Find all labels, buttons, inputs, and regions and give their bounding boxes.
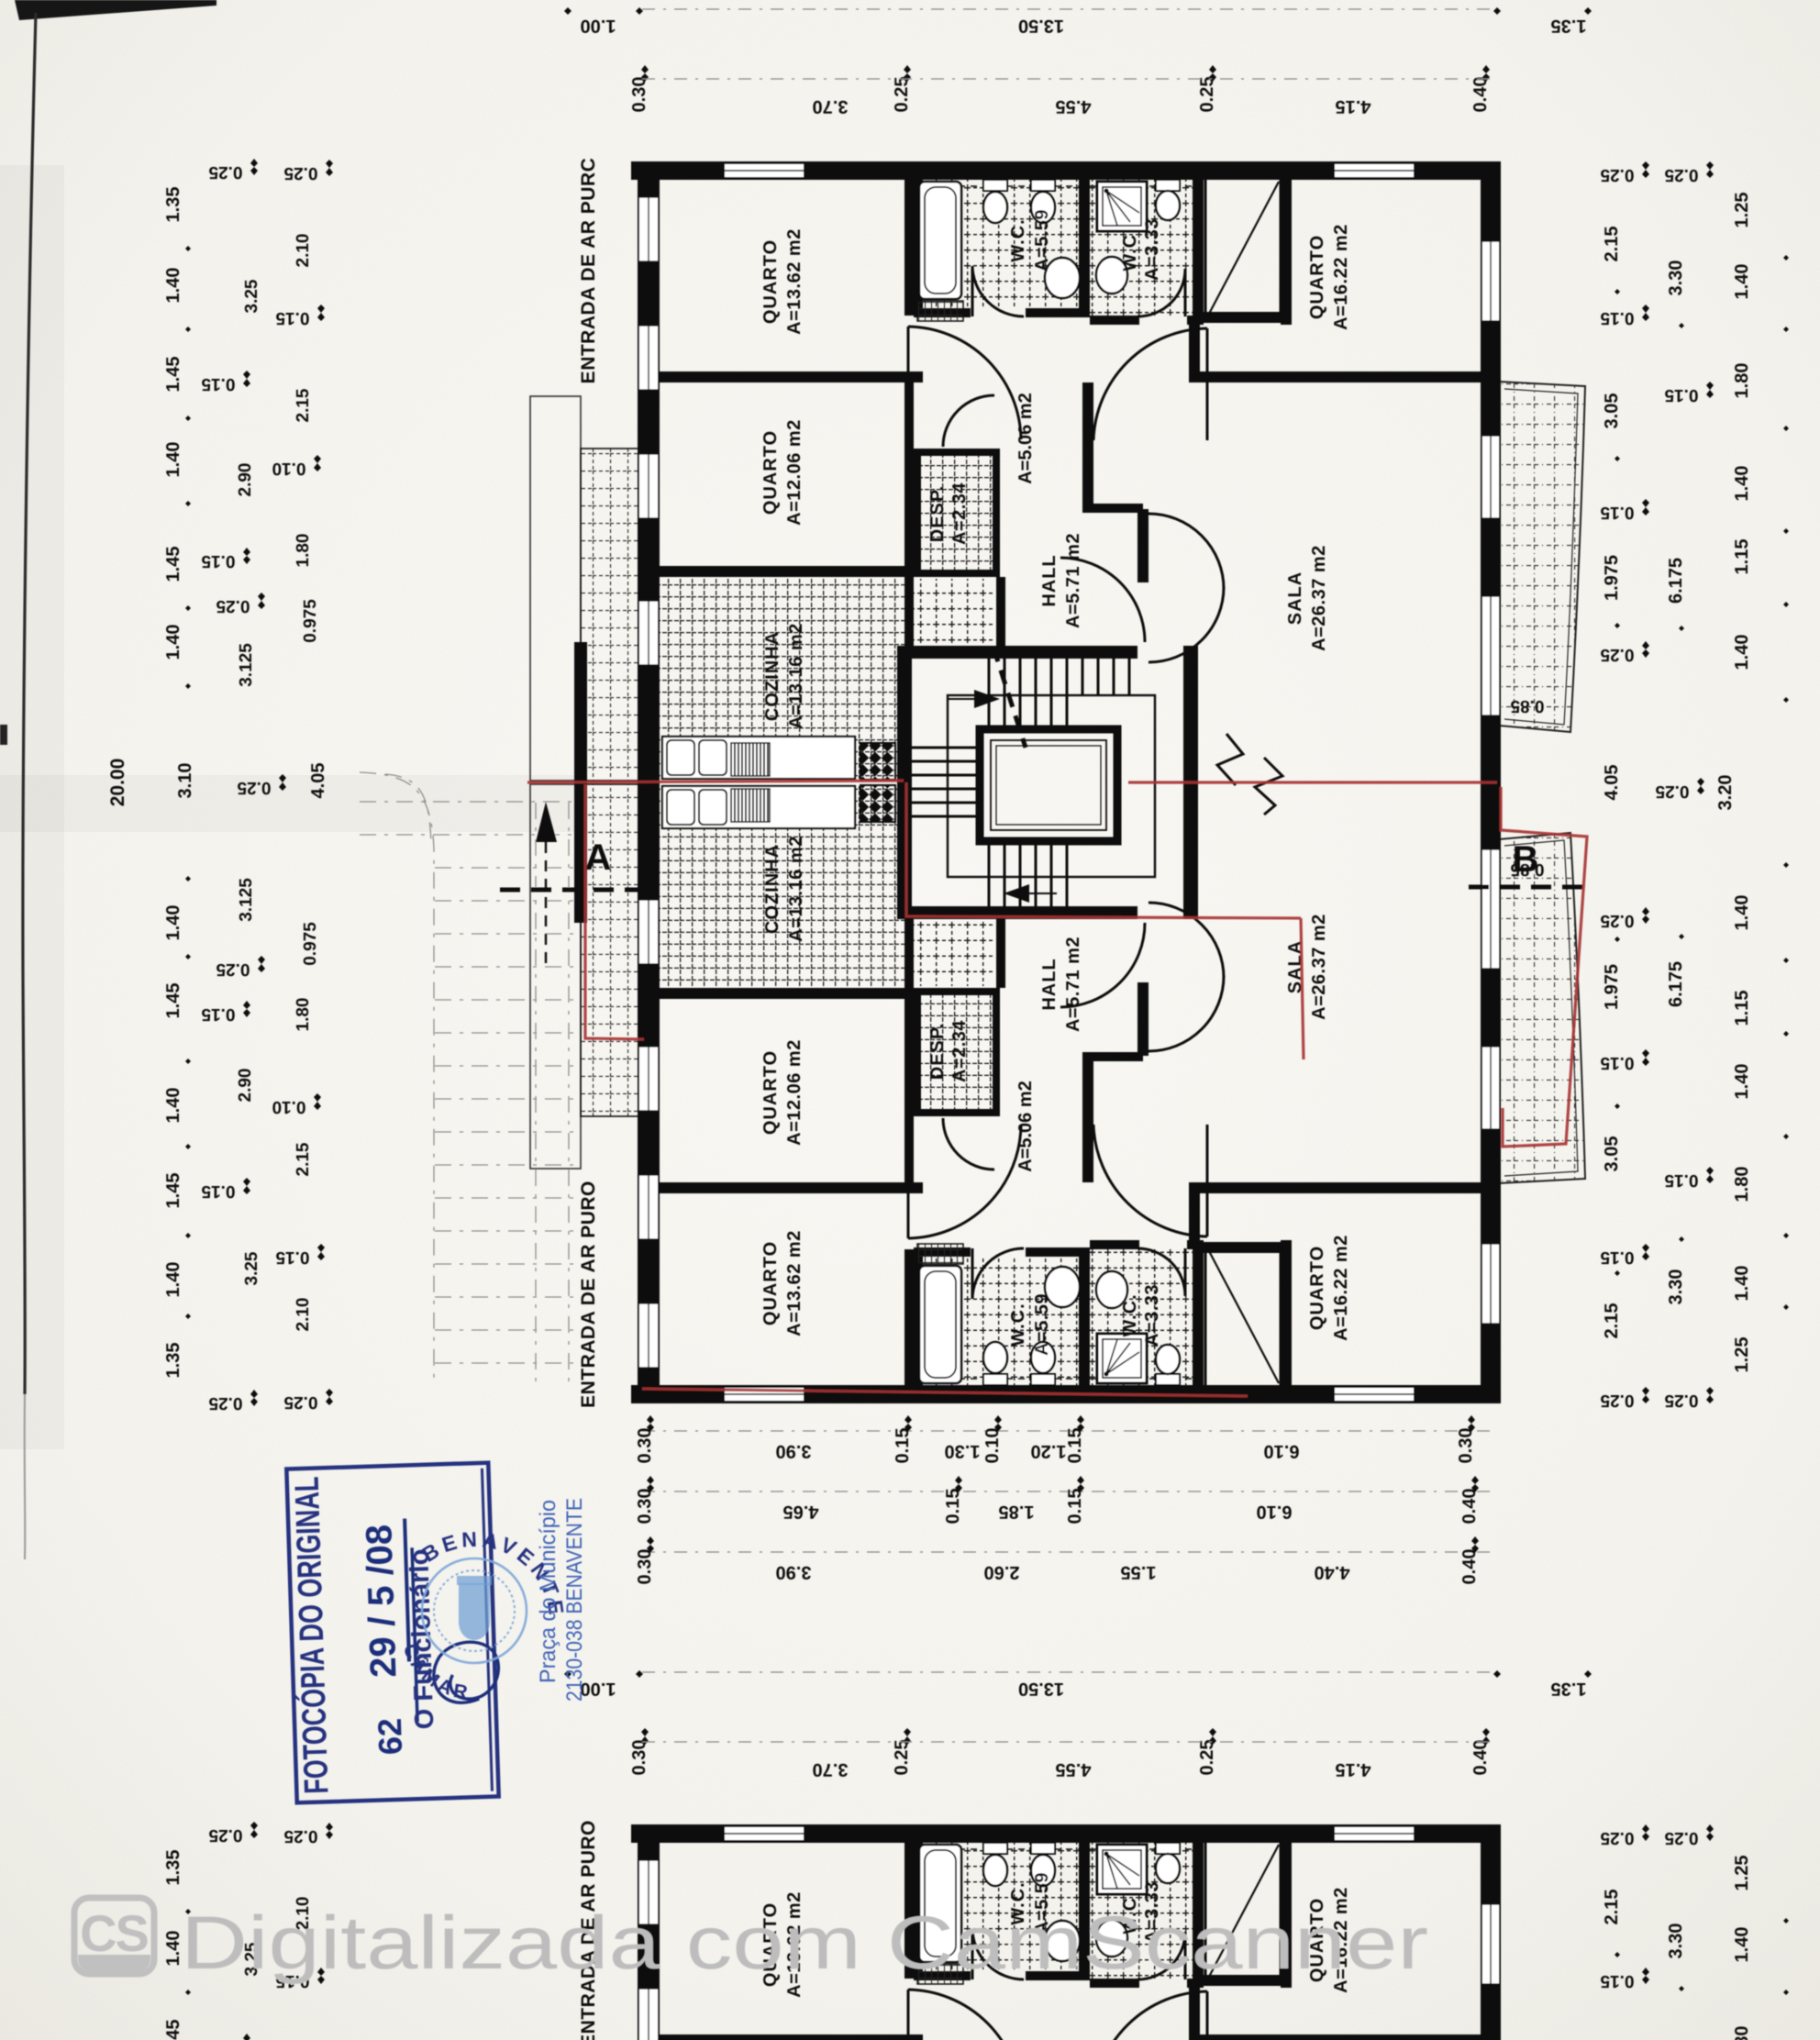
svg-text:0.975: 0.975 — [301, 922, 320, 966]
svg-text:0.15: 0.15 — [1600, 308, 1634, 327]
svg-text:A=3.33: A=3.33 — [1142, 218, 1162, 281]
svg-text:3.30: 3.30 — [1666, 1269, 1686, 1305]
svg-text:4.65: 4.65 — [783, 1502, 819, 1522]
svg-text:1.45: 1.45 — [163, 983, 183, 1019]
svg-text:ENTRADA DE AR PURC: ENTRADA DE AR PURC — [578, 158, 599, 384]
svg-text:1.40: 1.40 — [163, 1262, 183, 1298]
svg-text:1.40: 1.40 — [1732, 635, 1752, 671]
svg-text:0.15: 0.15 — [201, 374, 235, 394]
svg-text:1.975: 1.975 — [1602, 555, 1622, 601]
svg-text:0.85: 0.85 — [1510, 696, 1544, 715]
svg-text:A=13.62 m2: A=13.62 m2 — [784, 1230, 805, 1336]
svg-text:4.15: 4.15 — [1336, 1759, 1371, 1779]
svg-text:1.20: 1.20 — [1031, 1441, 1067, 1461]
svg-text:4.40: 4.40 — [1315, 1562, 1350, 1582]
svg-text:1.40: 1.40 — [1732, 1064, 1752, 1100]
svg-text:0.15: 0.15 — [1600, 1247, 1634, 1267]
svg-text:1.30: 1.30 — [945, 1441, 981, 1461]
svg-text:0.25: 0.25 — [208, 162, 242, 182]
svg-text:1.40: 1.40 — [163, 268, 183, 304]
svg-text:QUARTO: QUARTO — [1307, 1246, 1327, 1330]
svg-text:0.15: 0.15 — [1600, 1053, 1634, 1072]
svg-text:A=5.59: A=5.59 — [1032, 1293, 1052, 1356]
svg-text:1.35: 1.35 — [1551, 1679, 1587, 1699]
svg-text:A=5.06 m2: A=5.06 m2 — [1015, 393, 1036, 484]
svg-text:4.05: 4.05 — [1602, 765, 1622, 801]
svg-text:1.40: 1.40 — [163, 905, 183, 941]
svg-text:2.15: 2.15 — [1602, 227, 1622, 262]
svg-text:1.35: 1.35 — [163, 187, 183, 223]
svg-text:0.15: 0.15 — [893, 1428, 913, 1464]
svg-text:1.45: 1.45 — [163, 1173, 183, 1209]
svg-text:1.25: 1.25 — [1732, 193, 1752, 228]
svg-text:0.15: 0.15 — [275, 1247, 309, 1267]
svg-text:1.40: 1.40 — [1732, 895, 1752, 931]
svg-text:A=5.71 m2: A=5.71 m2 — [1063, 533, 1083, 628]
svg-text:3.125: 3.125 — [237, 643, 256, 687]
svg-text:3.125: 3.125 — [237, 878, 256, 922]
svg-text:A=12.06 m2: A=12.06 m2 — [784, 419, 805, 526]
svg-text:0.40: 0.40 — [1470, 77, 1491, 113]
svg-text:1.25: 1.25 — [1732, 1337, 1752, 1373]
svg-text:0.25: 0.25 — [1664, 165, 1698, 184]
svg-text:3.90: 3.90 — [776, 1562, 812, 1582]
svg-text:A=2.34: A=2.34 — [949, 482, 970, 545]
svg-text:3.25: 3.25 — [242, 279, 261, 313]
svg-text:3.25: 3.25 — [242, 1251, 261, 1285]
svg-text:3.10: 3.10 — [175, 763, 195, 799]
svg-text:W.C.: W.C. — [1008, 218, 1028, 261]
svg-text:2.15: 2.15 — [294, 388, 313, 422]
svg-text:CS: CS — [80, 1904, 148, 1962]
svg-text:0.25: 0.25 — [892, 77, 912, 113]
svg-text:3.70: 3.70 — [813, 96, 849, 116]
svg-text:6.10: 6.10 — [1264, 1441, 1300, 1461]
svg-text:3.20: 3.20 — [1715, 775, 1736, 811]
svg-text:0.30: 0.30 — [635, 1428, 655, 1464]
svg-text:2.10: 2.10 — [294, 234, 313, 268]
svg-text:0.25: 0.25 — [237, 778, 271, 797]
svg-text:1.40: 1.40 — [1732, 466, 1752, 502]
svg-text:HALL: HALL — [1039, 554, 1060, 606]
svg-text:1.40: 1.40 — [1732, 1266, 1752, 1302]
svg-text:Praça do Município: Praça do Município — [536, 1500, 560, 1683]
svg-text:1.55: 1.55 — [1121, 1562, 1157, 1582]
svg-text:0.30: 0.30 — [629, 77, 649, 113]
svg-text:B: B — [1513, 839, 1539, 880]
svg-text:QUARTO: QUARTO — [760, 1241, 781, 1325]
svg-text:2.90: 2.90 — [236, 463, 255, 497]
svg-text:0.15: 0.15 — [201, 551, 235, 571]
svg-text:3.30: 3.30 — [1666, 261, 1686, 296]
svg-text:A=26.37 m2: A=26.37 m2 — [1309, 914, 1329, 1020]
svg-text:0.10: 0.10 — [982, 1428, 1003, 1464]
svg-text:A=16.22 m2: A=16.22 m2 — [1331, 224, 1351, 330]
svg-text:20.00: 20.00 — [107, 759, 128, 807]
svg-text:0.25: 0.25 — [1197, 1740, 1217, 1776]
svg-text:A=3.33: A=3.33 — [1142, 1284, 1162, 1347]
svg-text:COZINHA: COZINHA — [762, 631, 782, 721]
svg-text:13.50: 13.50 — [1018, 16, 1064, 36]
svg-text:0.975: 0.975 — [301, 599, 320, 643]
svg-text:3.05: 3.05 — [1602, 1136, 1622, 1172]
svg-text:1.80: 1.80 — [1732, 1167, 1752, 1203]
svg-text:A=2.34: A=2.34 — [949, 1020, 970, 1082]
svg-text:0.40: 0.40 — [1470, 1740, 1491, 1776]
svg-text:A=5.59: A=5.59 — [1032, 209, 1052, 272]
svg-text:A=5.71 m2: A=5.71 m2 — [1063, 937, 1083, 1032]
svg-text:A=12.06 m2: A=12.06 m2 — [784, 1039, 805, 1146]
svg-text:3.70: 3.70 — [813, 1759, 849, 1779]
svg-text:A=26.37 m2: A=26.37 m2 — [1309, 545, 1329, 651]
svg-text:A: A — [585, 837, 612, 878]
svg-text:0.15: 0.15 — [1600, 503, 1634, 522]
svg-text:29 / 5 /08: 29 / 5 /08 — [359, 1524, 404, 1678]
svg-text:0.40: 0.40 — [1459, 1489, 1480, 1524]
svg-text:1.35: 1.35 — [1551, 16, 1587, 36]
svg-text:0.30: 0.30 — [635, 1549, 655, 1585]
svg-text:A=5.06 m2: A=5.06 m2 — [1015, 1081, 1036, 1172]
svg-text:A=13.62 m2: A=13.62 m2 — [784, 228, 805, 335]
svg-text:1.80: 1.80 — [1732, 363, 1752, 399]
svg-text:1.975: 1.975 — [1602, 964, 1622, 1010]
svg-text:QUARTO: QUARTO — [760, 1050, 781, 1135]
svg-text:DESP.: DESP. — [927, 485, 948, 542]
svg-text:SALA: SALA — [1285, 571, 1305, 625]
svg-text:0.25: 0.25 — [1664, 1828, 1698, 1847]
svg-text:1.80: 1.80 — [294, 534, 313, 568]
svg-text:W.C.: W.C. — [1120, 1293, 1140, 1336]
svg-text:0.25: 0.25 — [283, 1392, 317, 1412]
svg-text:1.40: 1.40 — [1732, 1927, 1752, 1963]
svg-text:1.15: 1.15 — [1732, 991, 1752, 1026]
svg-text:1.85: 1.85 — [999, 1502, 1035, 1522]
svg-text:0.15: 0.15 — [1664, 385, 1698, 405]
svg-text:2.10: 2.10 — [294, 1298, 313, 1332]
svg-text:3.90: 3.90 — [776, 1441, 812, 1461]
svg-text:0.25: 0.25 — [1664, 1391, 1698, 1410]
svg-text:0.15: 0.15 — [275, 308, 309, 327]
svg-text:62: 62 — [371, 1717, 409, 1755]
svg-text:1.35: 1.35 — [163, 1850, 183, 1886]
svg-text:2.15: 2.15 — [294, 1142, 313, 1176]
svg-text:4.55: 4.55 — [1056, 96, 1092, 116]
svg-text:6.175: 6.175 — [1666, 558, 1686, 604]
svg-text:0.25: 0.25 — [1197, 77, 1217, 113]
svg-text:Digitalizada com CamScanner: Digitalizada com CamScanner — [181, 1901, 1428, 1985]
svg-text:1.45: 1.45 — [163, 357, 183, 393]
svg-text:0.25: 0.25 — [283, 1826, 317, 1846]
svg-text:1.40: 1.40 — [163, 1088, 183, 1124]
svg-text:0.10: 0.10 — [272, 459, 306, 478]
svg-text:0.30: 0.30 — [629, 1740, 649, 1776]
svg-text:0.15: 0.15 — [201, 1004, 235, 1024]
svg-text:1.40: 1.40 — [163, 625, 183, 660]
svg-text:0.25: 0.25 — [208, 1393, 242, 1413]
svg-text:2.15: 2.15 — [1602, 1303, 1622, 1339]
svg-text:W.C.: W.C. — [1008, 1303, 1028, 1346]
svg-text:QUARTO: QUARTO — [760, 239, 781, 324]
svg-text:0.25: 0.25 — [216, 959, 250, 979]
svg-text:QUARTO: QUARTO — [760, 430, 781, 515]
svg-text:1.80: 1.80 — [1732, 2026, 1752, 2040]
svg-text:0.30: 0.30 — [635, 1489, 655, 1524]
svg-text:1.40: 1.40 — [163, 442, 183, 478]
svg-text:0.25: 0.25 — [283, 163, 317, 183]
svg-text:0.25: 0.25 — [1655, 782, 1689, 801]
svg-text:A=13.16 m2: A=13.16 m2 — [786, 623, 806, 729]
svg-text:0.15: 0.15 — [1065, 1489, 1085, 1524]
svg-text:0.25: 0.25 — [1600, 1828, 1634, 1847]
svg-text:0.10: 0.10 — [272, 1097, 306, 1116]
svg-text:0.15: 0.15 — [943, 1489, 963, 1524]
svg-text:0.15: 0.15 — [1664, 1170, 1698, 1190]
svg-text:3.05: 3.05 — [1602, 394, 1622, 429]
svg-text:6.10: 6.10 — [1257, 1502, 1293, 1522]
svg-text:2.15: 2.15 — [1602, 1890, 1622, 1925]
svg-text:1.35: 1.35 — [163, 1343, 183, 1379]
svg-text:3.30: 3.30 — [1666, 1924, 1686, 1959]
svg-text:1.25: 1.25 — [1732, 1856, 1752, 1891]
svg-text:0.25: 0.25 — [892, 1740, 912, 1776]
svg-text:2.60: 2.60 — [984, 1562, 1020, 1582]
svg-text:0.15: 0.15 — [1065, 1428, 1085, 1464]
svg-text:1.45: 1.45 — [163, 2020, 183, 2040]
svg-text:0.40: 0.40 — [1459, 1549, 1480, 1585]
svg-text:COZINHA: COZINHA — [762, 844, 782, 934]
svg-text:0.25: 0.25 — [208, 1825, 242, 1845]
svg-text:QUARTO: QUARTO — [1307, 235, 1327, 319]
svg-text:2.90: 2.90 — [236, 1069, 255, 1103]
svg-text:A=13.16 m2: A=13.16 m2 — [786, 836, 806, 942]
svg-text:0.15: 0.15 — [1600, 1971, 1634, 1990]
svg-text:1.45: 1.45 — [163, 547, 183, 582]
svg-text:DESP.: DESP. — [927, 1023, 948, 1080]
svg-text:0.15: 0.15 — [201, 1181, 235, 1201]
svg-text:HALL: HALL — [1039, 958, 1060, 1010]
svg-text:1.00: 1.00 — [581, 16, 616, 36]
svg-text:1.40: 1.40 — [1732, 264, 1752, 300]
svg-text:1.15: 1.15 — [1732, 539, 1752, 575]
svg-text:0.30: 0.30 — [1456, 1428, 1476, 1464]
svg-text:0.25: 0.25 — [1600, 911, 1634, 930]
svg-text:6.175: 6.175 — [1666, 961, 1686, 1007]
svg-text:4.15: 4.15 — [1336, 96, 1371, 116]
svg-text:0.25: 0.25 — [1600, 165, 1634, 184]
svg-text:0.25: 0.25 — [1600, 1391, 1634, 1410]
svg-text:W.C.: W.C. — [1120, 227, 1140, 271]
svg-text:4.05: 4.05 — [308, 763, 328, 799]
svg-text:0.25: 0.25 — [216, 596, 250, 615]
svg-text:A=16.22 m2: A=16.22 m2 — [1331, 1235, 1351, 1341]
svg-text:0.25: 0.25 — [1600, 645, 1634, 664]
svg-text:4.55: 4.55 — [1056, 1759, 1092, 1779]
svg-text:ENTRADA DE AR PURO: ENTRADA DE AR PURO — [578, 1181, 599, 1408]
svg-text:13.50: 13.50 — [1018, 1679, 1064, 1699]
svg-text:2130-038 BENAVENTE: 2130-038 BENAVENTE — [562, 1498, 587, 1702]
svg-text:1.80: 1.80 — [294, 998, 313, 1032]
